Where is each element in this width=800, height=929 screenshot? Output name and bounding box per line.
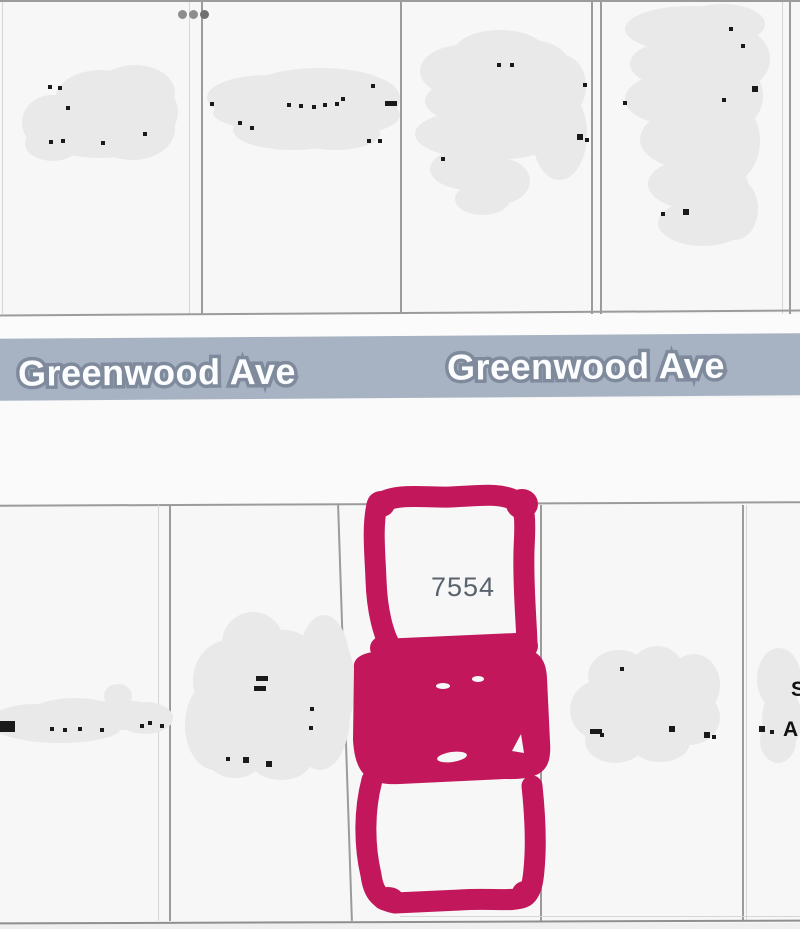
dot-icon: [178, 10, 187, 19]
parcel-map[interactable]: S A Greenwood Ave Greenwood Ave Greenwoo…: [0, 0, 800, 929]
highlight-annotation: [0, 0, 800, 929]
dot-icon: [189, 10, 198, 19]
highlight-middle-solid: [353, 647, 550, 784]
parcel-number-7554: 7554: [431, 572, 541, 603]
dot-icon: [200, 10, 209, 19]
highlight-bottom-rectangle: [366, 780, 535, 903]
